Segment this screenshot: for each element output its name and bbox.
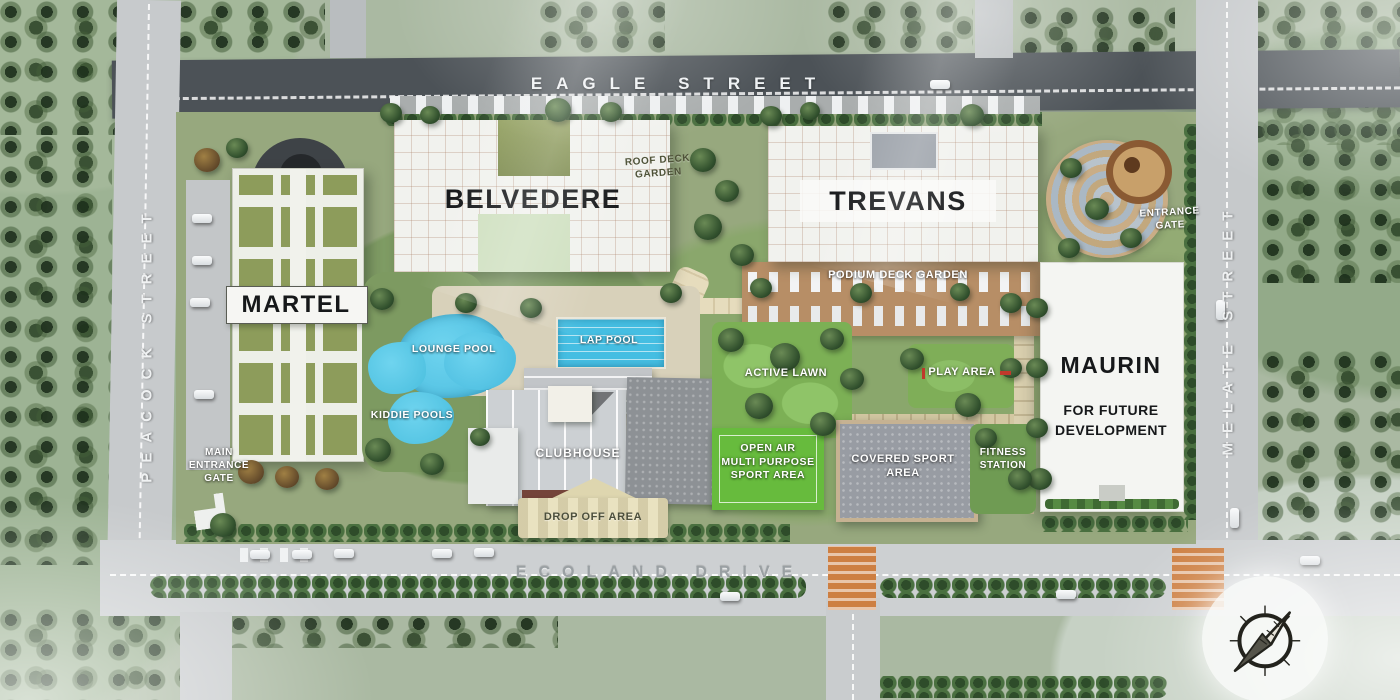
car <box>194 390 214 399</box>
roadside-hedge <box>862 676 1168 698</box>
tree <box>380 103 402 123</box>
tree <box>210 513 236 537</box>
ecoland-median-hedge <box>880 578 1166 598</box>
spiral-core <box>1124 157 1140 173</box>
area-label-lap-pool: LAP POOL <box>556 334 662 348</box>
car <box>474 548 494 557</box>
tree <box>715 180 739 202</box>
street-label-ecoland: ECOLAND DRIVE <box>440 564 880 582</box>
car <box>1300 556 1320 565</box>
tree-belt <box>1262 118 1400 283</box>
car <box>1230 508 1239 528</box>
car <box>292 550 312 559</box>
building-label-maurin-note: FOR FUTURE DEVELOPMENT <box>1040 400 1182 441</box>
site-hedge-bottom <box>1042 516 1188 532</box>
tree <box>750 278 772 298</box>
compass-badge <box>1202 576 1328 700</box>
area-label-podium-deck-garden: PODIUM DECK GARDEN <box>808 268 988 282</box>
tree <box>1085 198 1109 220</box>
tree <box>660 283 682 303</box>
tree <box>960 104 984 126</box>
area-label-clubhouse: CLUBHOUSE <box>514 446 642 462</box>
building-label-belvedere: BELVEDERE <box>408 184 658 215</box>
street-label-melate: MELATE STREET <box>1220 149 1237 509</box>
tree <box>730 244 754 266</box>
north-road <box>975 0 1013 58</box>
tree <box>226 138 248 158</box>
tree <box>955 393 981 417</box>
play-area-marker <box>922 368 925 379</box>
site-hedge-bottom <box>184 524 790 542</box>
belvedere-roof-deck <box>498 120 570 176</box>
car <box>432 549 452 558</box>
car <box>720 592 740 601</box>
tree <box>520 298 542 318</box>
maurin-entry-notch <box>1099 485 1125 501</box>
spiral-garden-feature <box>1106 140 1172 204</box>
west-parking-strip <box>186 180 230 470</box>
tree <box>600 102 622 122</box>
tree <box>455 293 477 313</box>
area-label-covered-sport: COVERED SPORT AREA <box>840 452 966 481</box>
tree <box>1026 298 1048 318</box>
car <box>190 298 210 307</box>
car <box>1056 590 1076 599</box>
tree-belt <box>175 0 325 58</box>
clubhouse-roof-right <box>625 377 723 505</box>
building-label-trevans: TREVANS <box>800 186 996 217</box>
area-label-entrance-gate: ENTRANCE GATE <box>1131 204 1208 234</box>
area-label-play-area: PLAY AREA <box>918 365 1006 379</box>
tree <box>745 393 773 419</box>
car <box>930 80 950 89</box>
street-label-eagle: EAGLE STREET <box>470 74 890 94</box>
north-parking-strip <box>390 96 1040 114</box>
clubhouse-tower <box>548 386 592 422</box>
tree <box>950 283 970 301</box>
site-hedge-right <box>1184 124 1196 520</box>
tree <box>840 368 864 390</box>
area-label-lounge-pool: LOUNGE POOL <box>398 343 510 357</box>
south-road <box>180 612 232 700</box>
tree <box>275 466 299 488</box>
car <box>192 214 212 223</box>
tree-belt <box>0 608 190 700</box>
area-label-active-lawn: ACTIVE LAWN <box>730 366 842 380</box>
car <box>192 256 212 265</box>
north-road <box>330 0 366 58</box>
tree-belt <box>1262 350 1400 565</box>
tree <box>194 148 220 172</box>
car <box>250 550 270 559</box>
car <box>334 549 354 558</box>
south-road-centerline <box>852 604 854 700</box>
area-label-drop-off: DROP OFF AREA <box>524 510 662 524</box>
belvedere-courtyard <box>478 214 570 272</box>
tree-belt <box>540 0 665 60</box>
tree <box>975 428 997 448</box>
tree-belt <box>0 0 125 135</box>
tree <box>820 328 844 350</box>
tree <box>365 438 391 462</box>
area-label-fitness-station: FITNESS STATION <box>968 446 1038 472</box>
tree <box>1060 158 1082 178</box>
building-label-martel: MARTEL <box>226 291 366 319</box>
play-area-marker <box>1000 371 1011 375</box>
tree <box>420 453 444 475</box>
north-arrow-compass-icon <box>1221 595 1309 683</box>
tree <box>1000 293 1022 313</box>
area-label-main-entrance-gate: MAIN ENTRANCE GATE <box>178 446 260 485</box>
tree <box>760 106 782 126</box>
tree <box>545 98 571 122</box>
tree <box>850 283 872 303</box>
tree <box>370 288 394 310</box>
tree <box>470 428 490 446</box>
street-label-peacock: PEACOCK STREET <box>139 164 156 524</box>
tree <box>315 468 339 490</box>
tree <box>718 328 744 352</box>
tree-belt <box>0 135 112 565</box>
area-label-kiddie-pools: KIDDIE POOLS <box>360 409 464 423</box>
tree <box>810 412 836 436</box>
tree <box>420 106 440 124</box>
tree <box>694 214 722 240</box>
building-label-maurin: MAURIN <box>1040 352 1182 379</box>
site-plan: EAGLE STREET PEACOCK STREET MELATE STREE… <box>0 0 1400 700</box>
tree <box>1058 238 1080 258</box>
tree-belt <box>228 612 558 648</box>
building-maurin <box>1040 262 1184 512</box>
trevans-roof-panel <box>870 132 938 170</box>
area-label-open-air-sport: OPEN AIR MULTI PURPOSE SPORT AREA <box>712 442 824 483</box>
tree <box>800 102 820 120</box>
